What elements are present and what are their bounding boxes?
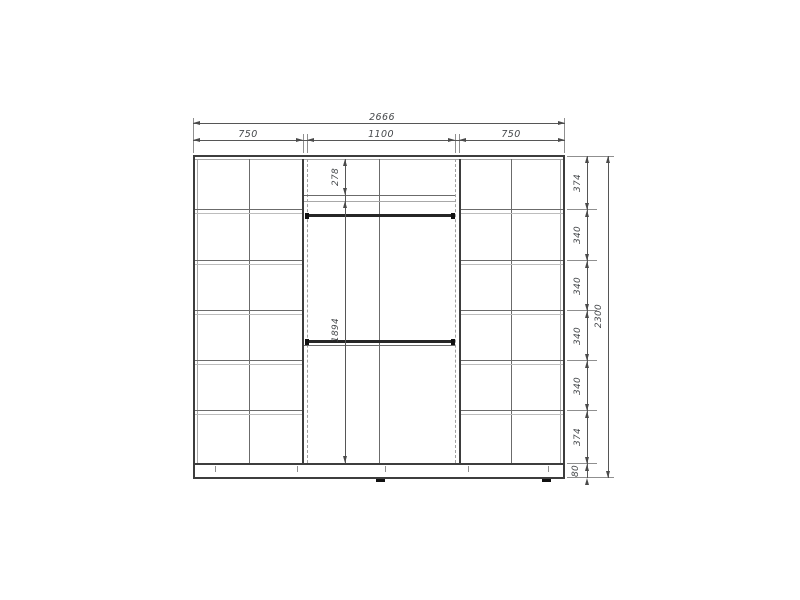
dim-label-row-3: 340 [573,266,585,306]
hanging-rod-upper [309,214,451,217]
shelf-line [195,310,302,315]
plinth-joint-tick [385,466,386,472]
cabinet-left-wall [193,155,195,479]
arrowhead [585,457,589,464]
dim-label-total-height: 2300 [594,296,606,336]
dim-line-sections [193,140,565,141]
shelf-line [461,209,563,214]
foot [376,479,385,482]
arrowhead [585,411,589,418]
plinth-joint-tick [297,466,298,472]
partition-left [302,159,304,463]
extension-line [567,209,597,210]
cabinet-bottom-edge [193,463,565,465]
dim-label-row-1: 374 [573,163,585,203]
arrowhead [585,254,589,261]
arrowhead [585,361,589,368]
arrowhead [193,121,200,125]
arrowhead [296,138,303,142]
middle-shelf-line [304,345,455,346]
cabinet-right-wall [563,155,565,479]
arrowhead [585,203,589,210]
dim-label-section-middle: 1100 [368,129,394,140]
shelf-line [195,360,302,365]
shelf-line [461,310,563,315]
arrowhead [343,159,347,166]
partition-right-dashed-line [455,159,456,463]
cabinet-top-edge [193,155,565,157]
middle-top-shelf-line [304,195,455,196]
arrowhead [585,404,589,411]
shelf-line [461,360,563,365]
partition-left-dashed-line [307,159,308,463]
arrowhead [343,456,347,463]
arrowhead [585,311,589,318]
arrowhead [606,156,610,163]
arrowhead [343,201,347,208]
arrowhead [193,138,200,142]
arrowhead [448,138,455,142]
dim-label-opening-height: 1894 [331,310,343,350]
wardrobe-elevation-drawing: 2666 750 1100 750 374 340 340 340 340 37… [0,0,800,600]
shelf-line [461,410,563,415]
dim-line-total-height [608,156,609,478]
rod-bracket [305,213,309,219]
plinth-joint-tick [468,466,469,472]
extension-line [567,310,597,311]
plinth-joint-tick [215,466,216,472]
arrowhead [585,464,589,471]
extension-line [307,134,308,153]
plinth-joint-tick [548,466,549,472]
arrowhead [585,354,589,361]
dim-label-row-5: 340 [573,366,585,406]
shelf-line [195,260,302,265]
dim-label-row-4: 340 [573,316,585,356]
rod-bracket [451,213,455,219]
dim-label-plinth: 80 [571,451,583,491]
dim-label-section-left: 750 [238,129,257,140]
arrowhead [606,471,610,478]
dim-line-total-width [193,123,565,124]
arrowhead [585,261,589,268]
dim-label-top-shelf-height: 278 [331,157,343,197]
arrowhead [585,210,589,217]
arrowhead [585,478,589,485]
extension-line [303,134,304,153]
middle-top-shelf-inner-line [304,201,455,202]
extension-line [567,410,597,411]
extension-line [455,134,456,153]
arrowhead [307,138,314,142]
extension-line [567,360,597,361]
arrowhead [585,156,589,163]
arrowhead [558,138,565,142]
arrowhead [343,188,347,195]
shelf-line [195,209,302,214]
foot [542,479,551,482]
dim-label-total-width: 2666 [369,112,395,123]
arrowhead [459,138,466,142]
shelf-line [461,260,563,265]
middle-section-center-line [379,159,380,463]
extension-line [567,260,597,261]
dim-label-section-right: 750 [501,129,520,140]
shelf-line [195,410,302,415]
dim-label-row-2: 340 [573,215,585,255]
arrowhead [558,121,565,125]
arrowhead [585,304,589,311]
extension-line [459,134,460,153]
